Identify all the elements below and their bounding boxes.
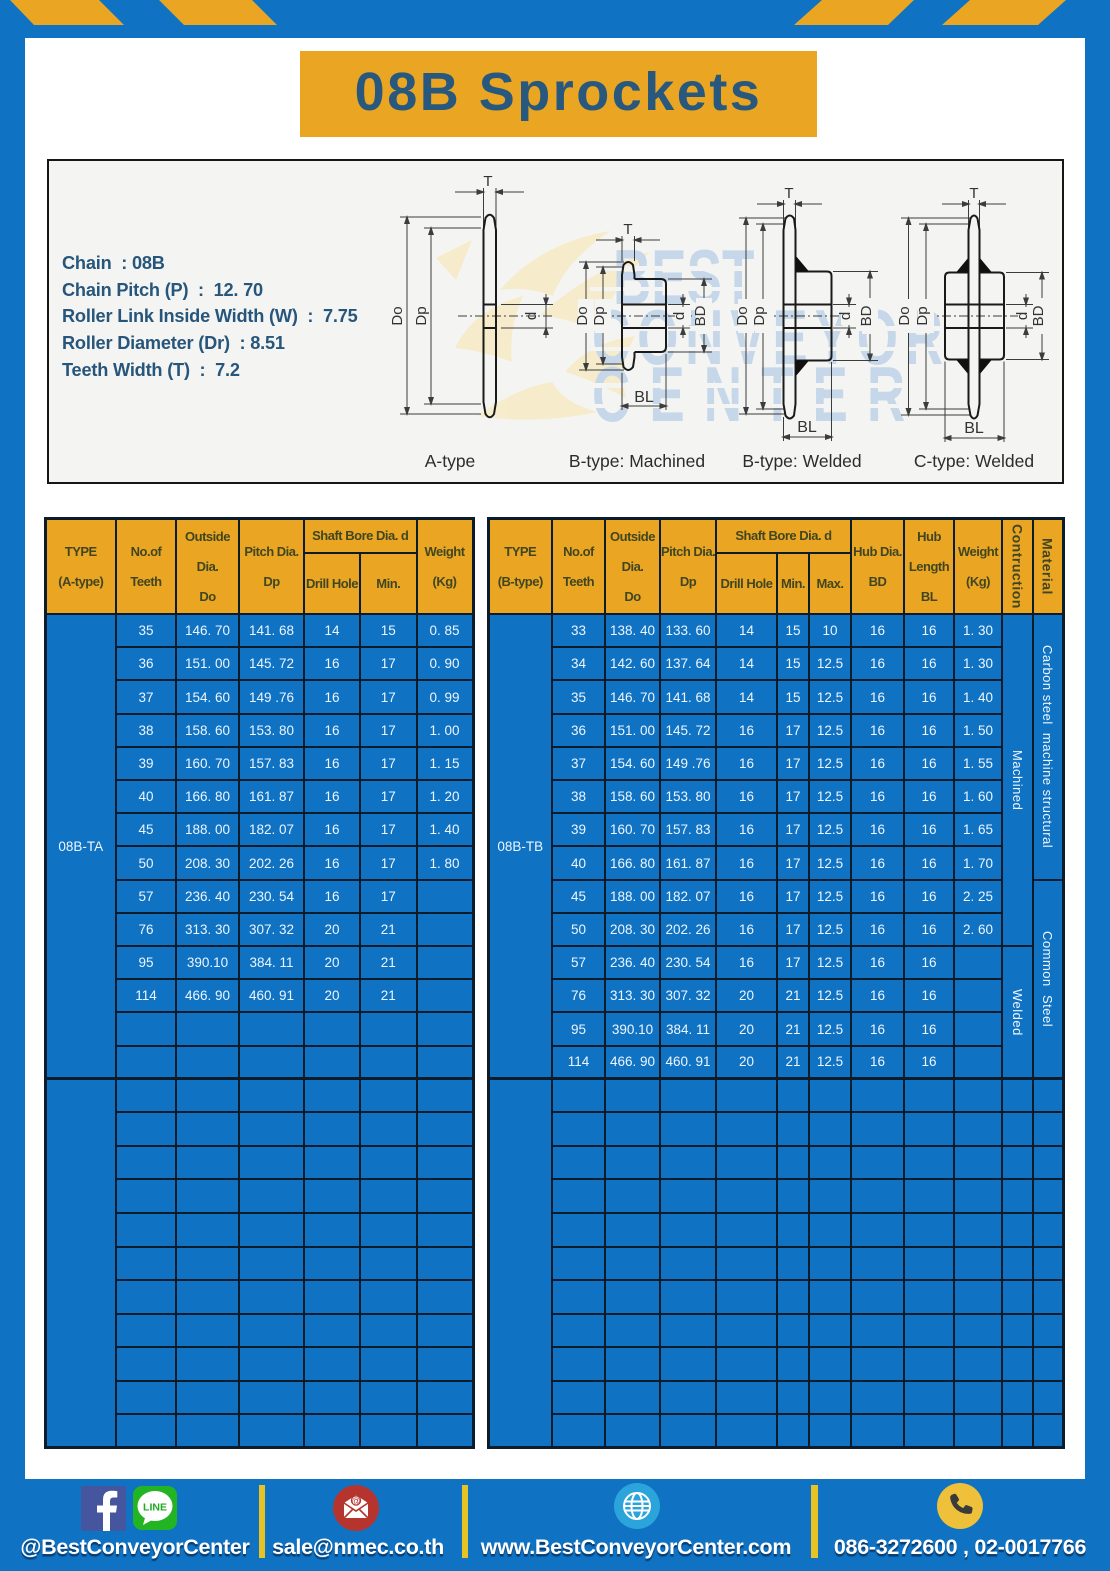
svg-text:A-type: A-type (425, 451, 476, 471)
svg-text:BD: BD (858, 305, 875, 326)
svg-text:BL: BL (964, 420, 984, 437)
svg-text:Do: Do (896, 306, 913, 325)
svg-text:B-type: Machined: B-type: Machined (569, 451, 705, 471)
svg-text:Dp: Dp (914, 306, 931, 325)
svg-text:BD: BD (1030, 305, 1047, 326)
svg-text:d: d (837, 312, 854, 320)
svg-text:Dp: Dp (413, 306, 430, 325)
svg-text:T: T (969, 185, 978, 202)
svg-text:LINE: LINE (143, 1502, 167, 1514)
svg-text:T: T (483, 173, 492, 190)
svg-text:Do: Do (574, 306, 591, 325)
svg-text:Dp: Dp (751, 306, 768, 325)
svg-text:B-type: Welded: B-type: Welded (742, 451, 861, 471)
svg-text:d: d (523, 312, 540, 320)
svg-text:BD: BD (692, 305, 709, 326)
svg-text:Do: Do (389, 306, 406, 325)
svg-text:Do: Do (734, 306, 751, 325)
svg-text:BL: BL (634, 389, 654, 406)
svg-text:Dp: Dp (591, 306, 608, 325)
svg-text:@: @ (351, 1496, 360, 1506)
svg-text:T: T (623, 221, 632, 238)
svg-text:C-type: Welded: C-type: Welded (914, 451, 1034, 471)
svg-text:d: d (671, 312, 688, 320)
svg-text:T: T (784, 185, 793, 202)
svg-text:d: d (1014, 312, 1031, 320)
svg-text:BL: BL (797, 419, 817, 436)
